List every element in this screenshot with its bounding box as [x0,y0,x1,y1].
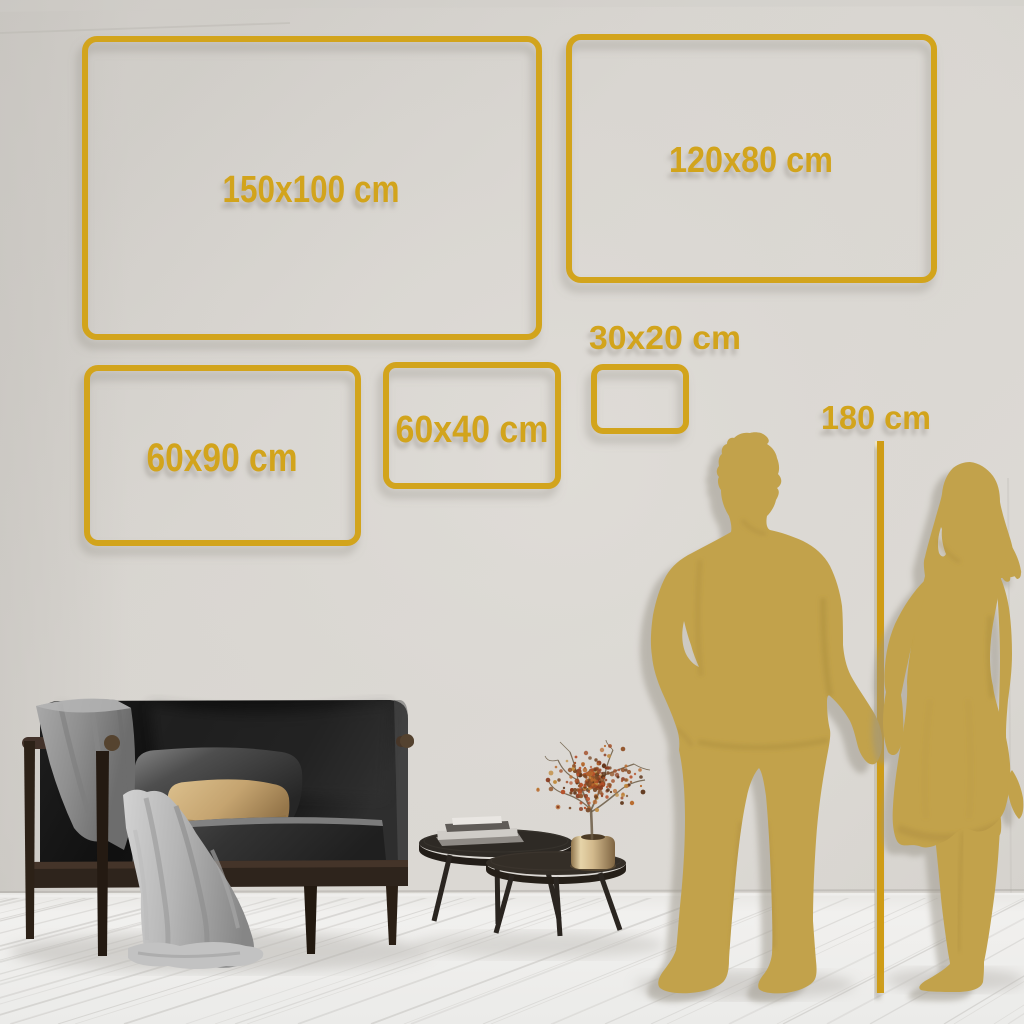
svg-text:120x80 cm: 120x80 cm [669,139,833,180]
svg-text:150x100 cm: 150x100 cm [223,169,400,211]
svg-text:60x40 cm: 60x40 cm [396,409,549,451]
svg-text:60x90 cm: 60x90 cm [147,436,298,480]
svg-text:30x20 cm: 30x20 cm [589,319,741,356]
svg-text:180 cm: 180 cm [821,399,931,436]
